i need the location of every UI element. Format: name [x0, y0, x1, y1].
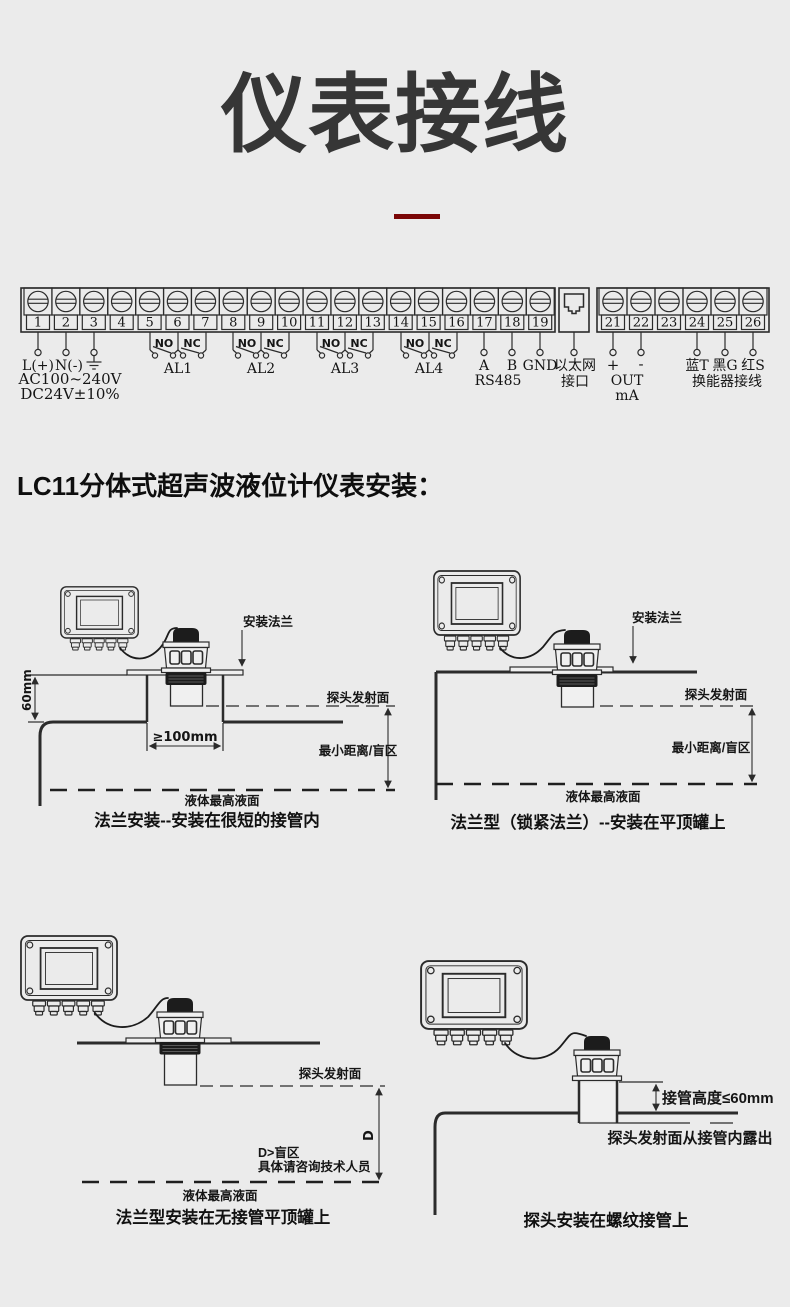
terminal-number: 26	[745, 316, 762, 331]
installation-diagrams-row-1: 60mm ≥100mm 安装法兰 探头发射面 最小距离/盲区 液体最高液面 法兰…	[0, 555, 790, 860]
pipe-height-label: 接管高度≤60mm	[662, 1089, 774, 1107]
terminal-number: 9	[257, 316, 265, 331]
installation-diagram-2: 安装法兰 探头发射面 最小距离/盲区 液体最高液面 法兰型（锁紧法兰）--安装在…	[434, 571, 757, 832]
label-rs485: RS485	[475, 373, 522, 389]
label-no: NO	[406, 337, 425, 350]
analog-out-wires	[610, 332, 644, 356]
label-nc: NC	[350, 337, 367, 350]
earth-ground-icon	[87, 356, 102, 369]
controller-unit	[421, 961, 527, 1045]
probe-lock-ring	[557, 675, 598, 688]
label-ma: mA	[615, 388, 639, 404]
label-nc: NC	[266, 337, 283, 350]
ultrasonic-probe	[162, 628, 211, 673]
terminal-number: 8	[229, 316, 237, 331]
page-title: 仪表接线	[0, 66, 790, 165]
label-no: NO	[155, 337, 174, 350]
label-ethernet-1: 以太网	[554, 358, 596, 374]
terminal-number: 10	[281, 316, 298, 331]
emission-face-label: 探头发射面	[327, 690, 390, 705]
installation-diagram-3: D D>盲区 具体请咨询技术人员 液体最高液面 探头发射面 法兰型安装在无接管平…	[21, 936, 385, 1227]
flange-label: 安装法兰	[632, 610, 683, 625]
label-no: NO	[238, 337, 257, 350]
dimension-60mm-label: 60mm	[20, 669, 34, 711]
installation-diagrams-row-2: D D>盲区 具体请咨询技术人员 液体最高液面 探头发射面 法兰型安装在无接管平…	[0, 925, 790, 1240]
terminal-number: 25	[717, 316, 734, 331]
ultrasonic-probe	[553, 630, 602, 675]
ultrasonic-probe	[156, 998, 205, 1043]
transducer-wires	[694, 332, 756, 356]
diagram-caption: 法兰型安装在无接管平顶罐上	[116, 1207, 331, 1227]
label-black-g: 黑G	[712, 358, 737, 374]
controller-unit	[21, 936, 117, 1015]
terminal-number: 5	[145, 316, 153, 331]
label-rs485-b: B	[507, 358, 517, 374]
blind-zone-label-2: 具体请咨询技术人员	[257, 1159, 371, 1174]
terminal-number: 13	[365, 316, 382, 331]
pipe-interior	[580, 1083, 616, 1121]
terminal-number: 18	[504, 316, 521, 331]
blind-zone-label: 最小距离/盲区	[319, 743, 398, 758]
terminal-number: 22	[633, 316, 650, 331]
terminal-number: 7	[201, 316, 209, 331]
label-ethernet-2: 接口	[561, 373, 589, 390]
terminal-number: 17	[476, 316, 493, 331]
probe-body	[165, 1054, 197, 1085]
title-underline	[394, 214, 440, 219]
terminal-number: 24	[689, 316, 706, 331]
terminal-block-2-cells: 212223242526	[599, 288, 767, 331]
relay-group-al3: NO NC AL3	[317, 332, 373, 377]
ultrasonic-probe	[573, 1036, 622, 1081]
label-blue-t: 蓝T	[685, 358, 709, 374]
relay-group-al2: NO NC AL2	[233, 332, 289, 377]
label-nc: NC	[434, 337, 451, 350]
relay-group-al4: NO NC AL4	[401, 332, 457, 377]
terminal-number: 19	[532, 316, 549, 331]
blind-zone-label-1: D>盲区	[258, 1145, 300, 1160]
terminal-block-1-cells: 12345678910111213141516171819	[24, 288, 554, 331]
label-out-plus: +	[607, 356, 620, 374]
ethernet-port-icon	[565, 294, 584, 314]
label-al1: AL1	[163, 361, 192, 377]
label-al3: AL3	[330, 361, 359, 377]
emission-face-label: 探头发射面	[299, 1066, 362, 1081]
diagram-caption: 法兰型（锁紧法兰）--安装在平顶罐上	[451, 812, 726, 832]
controller-unit	[434, 571, 520, 650]
installation-diagram-1: 60mm ≥100mm 安装法兰 探头发射面 最小距离/盲区 液体最高液面 法兰…	[20, 587, 398, 830]
terminal-number: 11	[309, 316, 326, 331]
tank-roof-and-wall	[435, 1113, 579, 1215]
label-out: OUT	[611, 373, 644, 389]
terminal-number: 23	[661, 316, 678, 331]
terminal-number: 3	[90, 316, 98, 331]
label-no: NO	[322, 337, 341, 350]
label-al4: AL4	[414, 361, 443, 377]
terminal-number: 2	[62, 316, 70, 331]
label-out-minus: -	[638, 355, 643, 373]
terminal-number: 21	[605, 316, 622, 331]
tank-wall	[40, 722, 147, 806]
probe-lock-ring	[160, 1042, 201, 1055]
distance-d-label: D	[362, 1130, 377, 1141]
dimension-100mm-label: ≥100mm	[152, 730, 217, 745]
label-gnd: GND	[523, 358, 558, 374]
terminal-number: 15	[420, 316, 437, 331]
section-heading: LC11分体式超声波液位计仪表安装：	[17, 466, 443, 503]
max-liquid-label: 液体最高液面	[182, 1188, 258, 1203]
rs485-wires	[481, 332, 543, 356]
label-rs485-a: A	[478, 358, 490, 374]
flange-label: 安装法兰	[243, 614, 294, 629]
label-transducer: 换能器接线	[692, 373, 762, 390]
relay-group-al1: NO NC AL1	[150, 332, 206, 377]
max-liquid-label: 液体最高液面	[565, 789, 641, 804]
terminal-wiring-diagram: 12345678910111213141516171819 2122232425…	[0, 283, 790, 418]
diagram-caption: 法兰安装--安装在很短的接管内	[94, 810, 320, 830]
ethernet-pin	[571, 349, 577, 355]
emission-face-exposed-label: 探头发射面从接管内露出	[607, 1129, 772, 1147]
controller-unit	[61, 587, 138, 650]
terminal-number: 16	[448, 316, 465, 331]
probe-body	[171, 684, 203, 706]
terminal-number: 6	[173, 316, 181, 331]
emission-face-label: 探头发射面	[685, 687, 748, 702]
max-liquid-label: 液体最高液面	[184, 793, 260, 808]
label-al2: AL2	[246, 361, 275, 377]
diagram-caption: 探头安装在螺纹接管上	[524, 1210, 689, 1230]
probe-lock-ring	[166, 673, 207, 686]
label-nc: NC	[183, 337, 200, 350]
label-dc-range: DC24V±10%	[20, 385, 119, 403]
terminal-number: 4	[118, 316, 126, 331]
terminal-number: 1	[34, 316, 42, 331]
product-detail-page: 仪表接线 12345678910111213141516171819 21222…	[0, 0, 790, 1307]
blind-zone-label: 最小距离/盲区	[672, 740, 751, 755]
terminal-number: 14	[392, 316, 409, 331]
label-red-s: 红S	[741, 358, 765, 374]
installation-diagram-4: 接管高度≤60mm 探头发射面从接管内露出 探头安装在螺纹接管上	[421, 961, 774, 1230]
terminal-number: 12	[337, 316, 354, 331]
probe-body	[562, 686, 594, 707]
